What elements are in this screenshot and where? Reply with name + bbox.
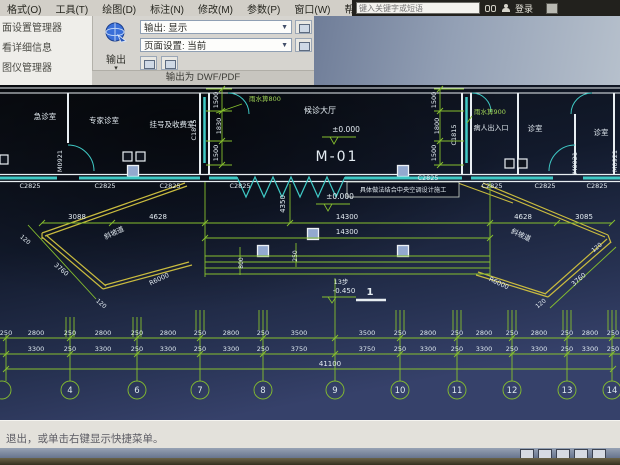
elevation-label: ±0.000	[326, 192, 354, 201]
room-label: 候诊大厅	[304, 105, 336, 115]
grid-bubble-label: 11	[452, 386, 463, 396]
window-label: C2825	[229, 182, 250, 190]
menu-item-parametric[interactable]: 参数(P)	[240, 1, 287, 16]
export-target-combo-value: 输出: 显示	[144, 20, 187, 34]
chain-dim-label: 3300	[420, 345, 437, 353]
room-label: 诊室	[528, 123, 543, 133]
steps-count-label: 13步	[334, 278, 349, 286]
chain-dim-label: 250	[0, 329, 12, 337]
page-setup-combo-value: 页面设置: 当前	[144, 38, 206, 52]
main-door-label: M-01	[316, 149, 359, 165]
chain-dim-label: 250	[64, 329, 76, 337]
side-window-label: C1815	[190, 119, 198, 140]
dim-label: 1500	[212, 145, 220, 162]
grid-bubble-label: 8	[260, 386, 265, 396]
grid-bubble-label: 6	[134, 386, 139, 396]
dim-label: 4350	[279, 195, 287, 213]
elevation-label: ±0.000	[332, 125, 360, 134]
chain-dim-label: 250	[131, 345, 143, 353]
dim-label: 250	[292, 250, 299, 262]
status-bar	[0, 448, 620, 458]
export-button-label: 输出	[96, 51, 136, 66]
command-prompt-text: 退出，或单击右键显示快捷菜单。	[6, 431, 164, 446]
user-person-icon[interactable]	[501, 4, 510, 13]
chain-dim-label: 250	[451, 329, 463, 337]
search-input[interactable]	[356, 2, 480, 14]
chain-dim-label: 250	[451, 345, 463, 353]
dim-label: 1500	[430, 92, 438, 109]
dim-label: 1830	[215, 118, 223, 135]
chain-dim-label: 250	[194, 329, 206, 337]
rain-grate-label: 雨水箅800	[249, 94, 281, 103]
window-label: C2825	[586, 182, 607, 190]
section-number-label: 1	[367, 287, 374, 298]
dim-label: 800	[238, 257, 245, 269]
elevation-label: -0.450	[333, 287, 356, 295]
side-door-label: M0921	[56, 150, 64, 172]
chain-dim-label: 250	[561, 345, 573, 353]
chain-dim-label: 3300	[160, 345, 177, 353]
grid-bubble-label: 13	[562, 386, 573, 396]
grid-bubble-label: 9	[332, 386, 337, 396]
room-label: 挂号及收费室	[150, 119, 195, 129]
search-binocular-icon[interactable]	[485, 5, 496, 12]
dim-label: 1500	[430, 145, 438, 162]
photo-shadow-overlay	[0, 85, 620, 420]
dim-label: 1500	[212, 92, 220, 109]
chevron-down-icon: ▼	[281, 42, 288, 49]
chain-dim-label: 2800	[160, 329, 177, 337]
chain-dim-label: 250	[506, 345, 518, 353]
palette-item-view-details[interactable]: 看详细信息	[0, 36, 92, 56]
chain-dim-label: 3750	[291, 345, 308, 353]
chain-dim-label: 250	[394, 329, 406, 337]
rain-grate-label: 雨水箅900	[474, 107, 506, 116]
chain-dim-label: 250	[64, 345, 76, 353]
page-setup-combo[interactable]: 页面设置: 当前 ▼	[140, 38, 292, 52]
chain-dim-label: 3300	[95, 345, 112, 353]
window-label: C2825	[159, 182, 180, 190]
chain-dim-label: 2800	[582, 329, 599, 337]
window-label: C2825	[19, 182, 40, 190]
note-text: 具体做法结合中央空调设计施工	[360, 186, 447, 194]
note-box: 具体做法结合中央空调设计施工	[347, 182, 459, 197]
chain-dim-label: 3750	[359, 345, 376, 353]
dim-label: 3085	[575, 213, 593, 221]
chain-dim-label: 3300	[476, 345, 493, 353]
window-control-button[interactable]	[546, 3, 558, 14]
chain-dim-label: 250	[394, 345, 406, 353]
dim-label: 41100	[319, 360, 341, 368]
title-bar-right: 登录	[352, 0, 620, 16]
chain-dim-label: 2800	[476, 329, 493, 337]
sign-in-link[interactable]: 登录	[515, 2, 533, 15]
dim-label: 1800	[433, 118, 441, 135]
grid-bubble-label: 12	[507, 386, 518, 396]
side-door-label: M0921	[571, 152, 579, 174]
left-palette: 面设置管理器 看详细信息 图仪管理器	[0, 16, 93, 85]
side-window-label: C1815	[450, 124, 458, 145]
chain-dim-label: 250	[194, 345, 206, 353]
room-label: 诊室	[594, 127, 609, 137]
chain-dim-label: 2800	[28, 329, 45, 337]
chain-dim-label: 3300	[531, 345, 548, 353]
application-window: 格式(O) 工具(T) 绘图(D) 标注(N) 修改(M) 参数(P) 窗口(W…	[0, 0, 620, 465]
chain-dim-label: 2800	[223, 329, 240, 337]
dim-label: 4628	[514, 213, 532, 221]
page-setup-option-button[interactable]	[295, 38, 312, 52]
room-label: 急诊室	[34, 111, 57, 121]
menu-bar: 格式(O) 工具(T) 绘图(D) 标注(N) 修改(M) 参数(P) 窗口(W…	[0, 0, 620, 16]
desk-edge	[0, 458, 620, 465]
chain-dim-label: 3300	[223, 345, 240, 353]
chain-dim-label: 250	[506, 329, 518, 337]
export-option-button[interactable]	[295, 20, 312, 34]
chain-dim-label: 250	[131, 329, 143, 337]
export-target-combo[interactable]: 输出: 显示 ▼	[140, 20, 292, 34]
menu-item-tools[interactable]: 工具(T)	[48, 1, 95, 16]
menu-item-draw[interactable]: 绘图(D)	[95, 1, 143, 16]
chain-dim-label: 2800	[95, 329, 112, 337]
dim-label: 14300	[336, 228, 358, 236]
chain-dim-label: 250	[257, 345, 269, 353]
room-label: 专家诊室	[89, 115, 119, 125]
palette-item-page-setup-manager[interactable]: 面设置管理器	[0, 16, 92, 36]
chain-dim-label: 3300	[582, 345, 599, 353]
ribbon-panel-title: 输出为 DWF/PDF	[92, 70, 314, 85]
menu-item-window[interactable]: 窗口(W)	[287, 1, 337, 16]
chain-dim-label: 2800	[420, 329, 437, 337]
window-label: C2825	[94, 182, 115, 190]
command-line-area[interactable]: 退出，或单击右键显示快捷菜单。	[0, 420, 620, 449]
grid-bubble-label: 7	[197, 386, 202, 396]
grid-bubble-label: 4	[67, 386, 72, 396]
entrance-label: 病人出入口	[474, 123, 509, 132]
dim-label: 14300	[336, 213, 358, 221]
window-label: C2825	[534, 182, 555, 190]
window-label: C2825	[481, 182, 502, 190]
ribbon-empty-area	[314, 16, 620, 85]
chain-dim-label: 2800	[531, 329, 548, 337]
chain-dim-label: 250	[607, 329, 619, 337]
chevron-down-icon: ▼	[281, 24, 288, 31]
chain-dim-label: 250	[257, 329, 269, 337]
dim-label: 3088	[68, 213, 86, 221]
grid-bubble-label: 14	[607, 386, 618, 396]
grid-bubble-label: 10	[395, 386, 406, 396]
chain-dim-label: 250	[561, 329, 573, 337]
plot-button[interactable]	[161, 56, 178, 70]
dim-label: 4628	[149, 213, 167, 221]
ribbon: 面设置管理器 看详细信息 图仪管理器 输出 ▾ 输出: 显示 ▼ 页面设置: 当…	[0, 16, 620, 85]
chain-dim-label: 3300	[28, 345, 45, 353]
menu-item-dimension[interactable]: 标注(N)	[143, 1, 191, 16]
cad-canvas[interactable]: 具体做法结合中央空调设计施工 急诊室 专家诊室 挂号及收费室 候诊大厅 诊室 诊…	[0, 85, 620, 420]
chain-dim-label: 3500	[291, 329, 308, 337]
chain-dim-label: 3500	[359, 329, 376, 337]
preview-button[interactable]	[140, 56, 157, 70]
window-label: C2825	[417, 174, 438, 182]
globe-export-icon	[104, 21, 128, 45]
palette-item-plotter-manager[interactable]: 图仪管理器	[0, 56, 92, 76]
menu-item-format[interactable]: 格式(O)	[0, 1, 48, 16]
chain-dim-label: 250	[607, 345, 619, 353]
side-door-label: M0921	[611, 150, 619, 172]
menu-item-modify[interactable]: 修改(M)	[191, 1, 240, 16]
